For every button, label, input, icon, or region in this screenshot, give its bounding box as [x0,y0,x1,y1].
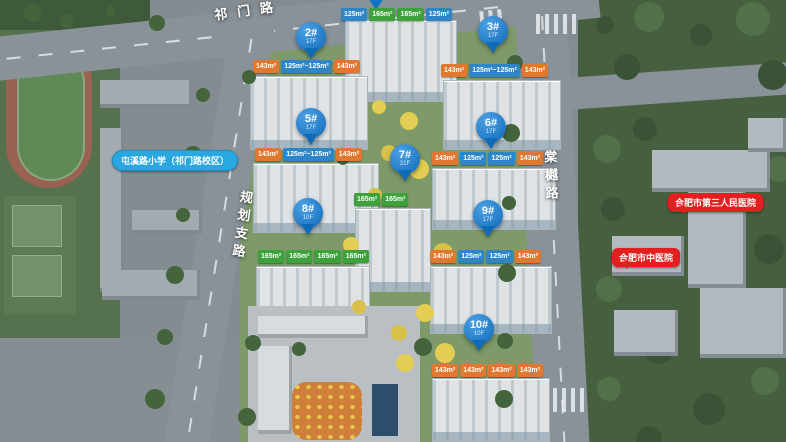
kindergarten-building [258,346,292,434]
pin-head: 7# 21F [390,144,420,174]
pin-building-2: 2# 17F [296,22,326,64]
zebra-crossing-bottom [544,388,586,412]
road-label-tangyue: 棠樾路 [540,150,561,205]
pin-head: 8# 10F [293,198,323,228]
pin-building-5: 5# 17F [296,108,326,150]
hospital-third-label: 合肥市第三人民医院 [668,193,763,212]
area-tags-building-5: 143m² 125m²~125m² 143m² [255,148,362,161]
area-tags-building-2: 143m² 125m²~125m² 143m² [253,60,360,73]
pin-floors: 17F [306,39,316,46]
pool [372,384,398,436]
school-building [100,80,192,108]
east-trees [596,16,614,34]
pin-floors: 17F [483,217,493,224]
yellow-trees [372,100,386,114]
area-tag: 125m² [488,152,514,165]
pin-head: 5# 17F [296,108,326,138]
pin-building-10: 10# 10F [464,314,494,356]
area-tag: 165m² [382,193,408,206]
area-tag: 143m² [517,152,543,165]
pin-building-3: 3# 17F [478,16,508,58]
area-tags-building-9: 143m² 125m² 125m² 143m² [430,250,541,263]
pin-head: 6# 17F [476,112,506,142]
area-tag: 143m² [441,64,467,77]
area-tag: 143m² [488,364,514,377]
school-building [132,210,202,234]
area-tag: 165m² [314,250,340,263]
area-tag: 165m² [354,193,380,206]
pin-building-8: 8# 10F [293,198,323,240]
area-tags-building-3: 143m² 125m²~125m² 143m² [441,64,548,77]
area-tag: 125m² [458,250,484,263]
area-tag: 143m² [253,60,279,73]
pin-floors: 10F [474,331,484,338]
area-tag: 165m² [369,8,395,21]
area-tag: 143m² [336,148,362,161]
pin-floors: 21F [400,161,410,168]
area-tag: 165m² [343,250,369,263]
hospital-building [748,118,786,152]
area-tags-building-10: 143m² 143m² 143m² 143m² [432,364,543,377]
aerial-site-plan: 祁门路 规划支路 棠樾路 屯溪路小学（祁门路校区） 合肥市第三人民医院 合肥市中… [0,0,786,442]
area-tag: 125m²~125m² [283,148,334,161]
pin-number: 6# [485,118,497,130]
pin-number: 2# [305,28,317,40]
hospital-tcm-label: 合肥市中医院 [612,248,680,267]
area-tag: 165m² [286,250,312,263]
area-tags-building-8: 165m² 165m² 165m² 165m² [258,250,369,263]
hospital-building [652,150,770,192]
pin-floors: 17F [488,33,498,40]
hospital-building [614,310,678,356]
pin-head: 10# 10F [464,314,494,344]
kindergarten-building [258,316,368,338]
area-tag: 125m² [460,152,486,165]
playground [292,382,362,440]
pin-number: 3# [487,22,499,34]
pin-number: 5# [305,114,317,126]
area-tags-building-6: 143m² 125m² 125m² 143m² [432,152,543,165]
building-10 [432,378,550,442]
pin-number: 8# [302,204,314,216]
hospital-building [700,288,786,358]
area-tag: 143m² [432,364,458,377]
area-tag: 143m² [334,60,360,73]
court [12,255,62,297]
area-tag: 125m²~125m² [469,64,520,77]
pin-floors: 17F [306,125,316,132]
area-tag: 125m² [486,250,512,263]
pin-floors: 17F [486,129,496,136]
area-tag: 143m² [430,250,456,263]
area-tag: 143m² [255,148,281,161]
area-tag: 143m² [517,364,543,377]
area-tags-building-1: 125m² 165m² 165m² 125m² [341,8,452,21]
pin-number: 9# [482,206,494,218]
zebra-crossing-top [536,14,578,34]
area-tag: 165m² [397,8,423,21]
area-tag: 125m² [426,8,452,21]
area-tag: 125m² [341,8,367,21]
area-tag: 143m² [432,152,458,165]
area-tag: 143m² [460,364,486,377]
pin-floors: 10F [303,215,313,222]
pin-building-6: 6# 17F [476,112,506,154]
area-tag: 125m²~125m² [281,60,332,73]
pin-head: 3# 17F [478,16,508,46]
pin-head: 2# 17F [296,22,326,52]
pin-building-9: 9# 17F [473,200,503,242]
pin-head: 9# 17F [473,200,503,230]
pin-building-7: 7# 21F [390,144,420,186]
area-tags-building-7: 165m² 165m² [354,193,408,206]
pin-number: 10# [470,320,488,332]
pin-number: 7# [399,150,411,162]
area-tag: 143m² [522,64,548,77]
area-tag: 165m² [258,250,284,263]
school-label: 屯溪路小学（祁门路校区） [112,150,238,171]
school-building [102,270,200,300]
court [12,205,62,247]
area-tag: 143m² [515,250,541,263]
green-trees [60,14,74,28]
